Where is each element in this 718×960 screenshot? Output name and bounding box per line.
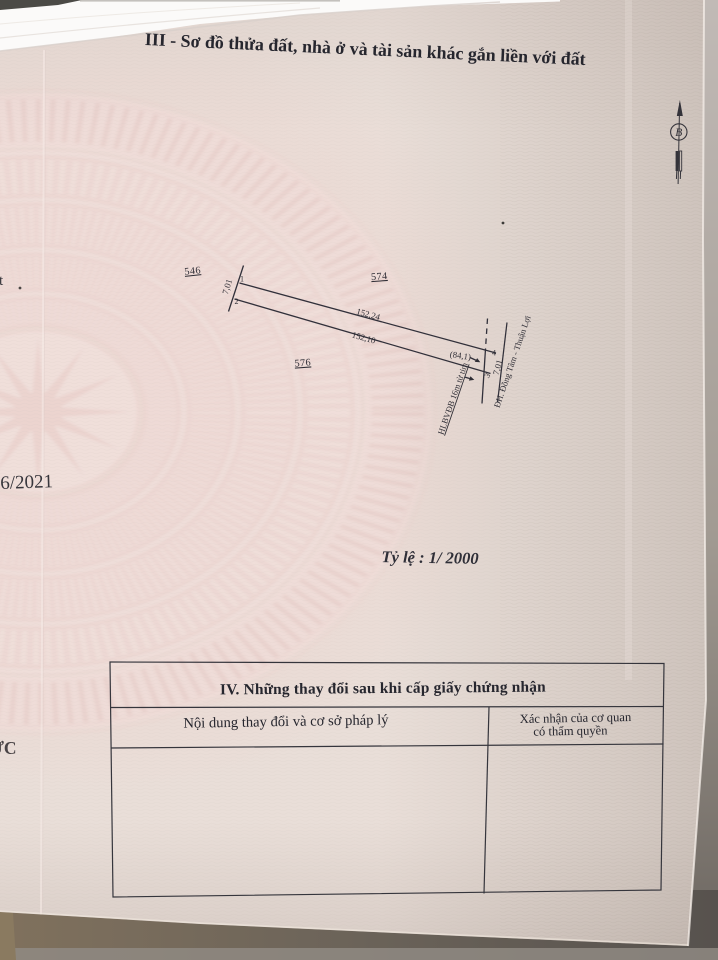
svg-text:546: 546 bbox=[184, 265, 202, 278]
svg-text:574: 574 bbox=[371, 271, 388, 283]
svg-text:ỨC: ỨC bbox=[0, 738, 17, 758]
svg-text:có thẩm quyền: có thẩm quyền bbox=[533, 723, 608, 738]
svg-text:6/2021: 6/2021 bbox=[0, 471, 53, 494]
svg-text:2: 2 bbox=[235, 297, 239, 306]
svg-text:B: B bbox=[675, 127, 682, 139]
svg-text:1: 1 bbox=[240, 275, 244, 284]
svg-text:IV. Những thay đổi sau khi cấp: IV. Những thay đổi sau khi cấp giấy chứn… bbox=[220, 679, 546, 699]
svg-text:Tỷ lệ : 1/ 2000: Tỷ lệ : 1/ 2000 bbox=[381, 547, 478, 568]
svg-text:576: 576 bbox=[294, 357, 311, 369]
svg-text:4: 4 bbox=[492, 349, 496, 358]
